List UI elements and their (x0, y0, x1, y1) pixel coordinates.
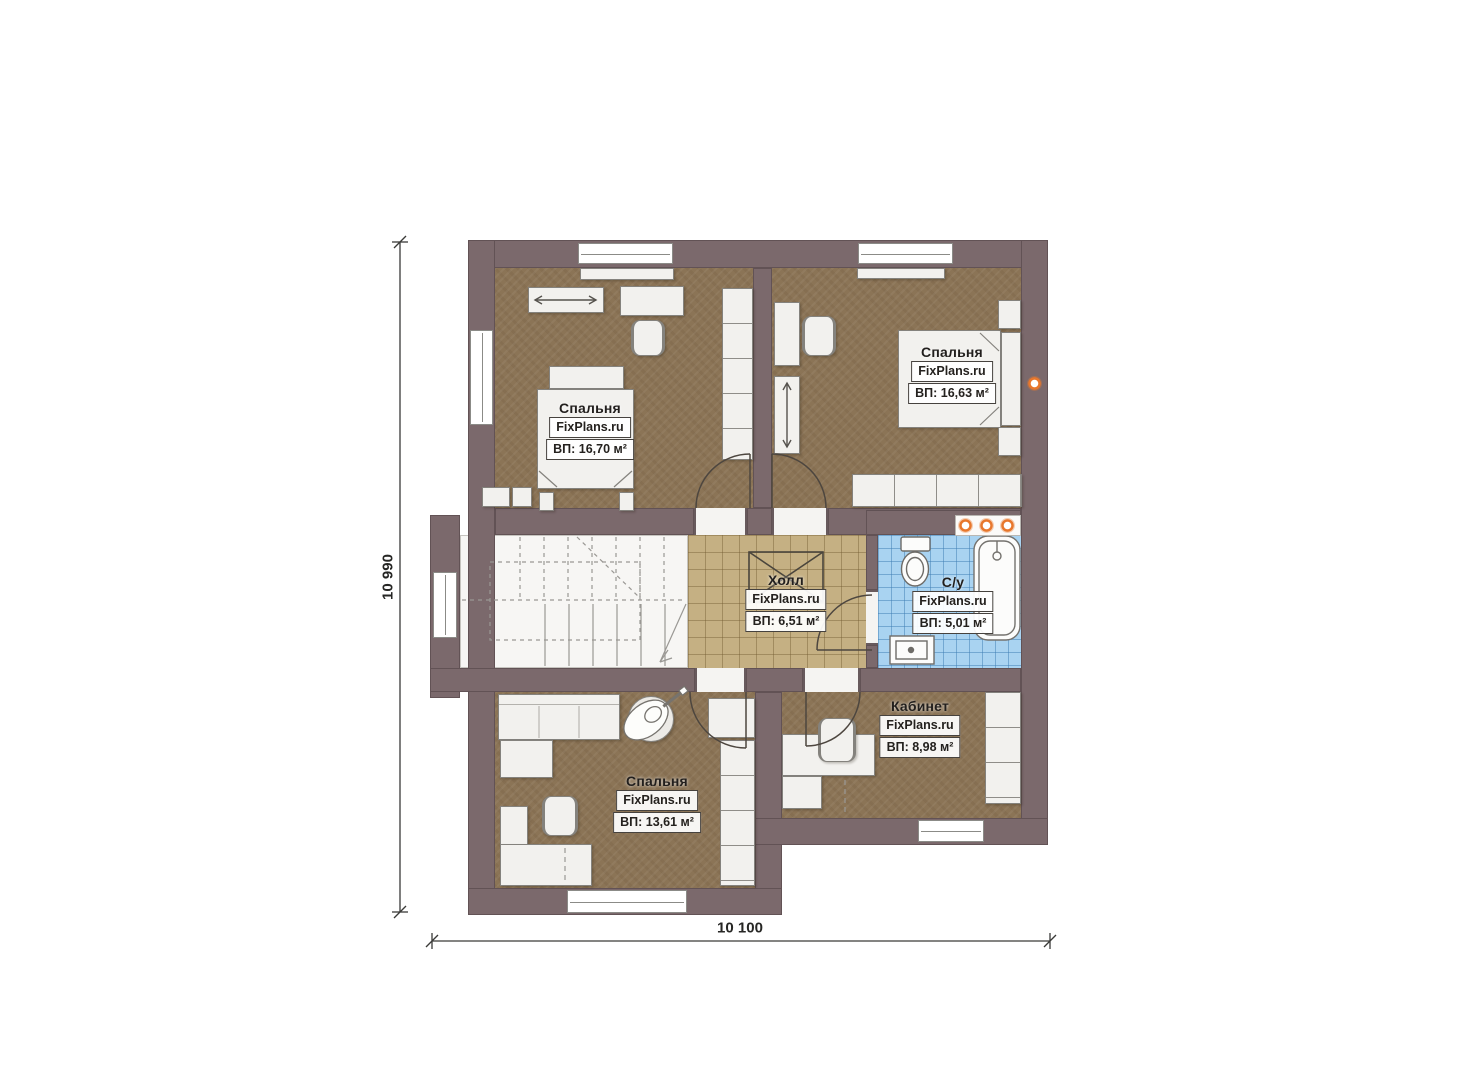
bed-headboard (1001, 332, 1021, 426)
door-opening-bedroom-top-right (772, 508, 828, 535)
room-brand: FixPlans.ru (616, 790, 697, 811)
chair (802, 316, 836, 356)
window (567, 890, 687, 913)
door-opening-office (803, 668, 860, 692)
cabinet (708, 698, 755, 738)
wall-segment (495, 508, 694, 535)
spotlight-icon (979, 518, 994, 533)
sofa (498, 694, 620, 740)
clothes-rail (528, 287, 604, 313)
window-sill-shelf (580, 268, 674, 280)
nightstand (998, 300, 1021, 329)
room-area: ВП: 13,61 м² (613, 812, 701, 833)
chair (631, 320, 665, 356)
wardrobe (720, 740, 755, 886)
room-label-office: Кабинет FixPlans.ru ВП: 8,98 м² (879, 698, 960, 758)
room-name: Кабинет (891, 698, 949, 714)
floor-plan: Спальня FixPlans.ru ВП: 16,70 м² Спальня… (0, 0, 1474, 1080)
room-brand: FixPlans.ru (879, 715, 960, 736)
desk-return (782, 776, 822, 809)
wall-segment (755, 692, 782, 915)
wall-segment (866, 645, 878, 668)
room-label-bedroom-bottom: Спальня FixPlans.ru ВП: 13,61 м² (613, 773, 701, 833)
room-area: ВП: 6,51 м² (746, 611, 827, 632)
room-area: ВП: 16,63 м² (908, 383, 996, 404)
window (578, 243, 673, 264)
door-opening-bedroom-top-left (694, 508, 747, 535)
desk (774, 302, 800, 366)
desk (500, 806, 528, 846)
room-brand: FixPlans.ru (549, 417, 630, 438)
wall-segment (755, 818, 1048, 845)
room-name: Спальня (559, 400, 621, 416)
dimension-width-label: 10 100 (717, 920, 763, 937)
spotlight-icon (1000, 518, 1015, 533)
wall-segment (747, 508, 772, 535)
cabinet (500, 740, 553, 778)
bed-foot-cabinet (539, 492, 554, 511)
wall-segment (468, 240, 1048, 268)
wall-segment (746, 668, 803, 692)
office-chair (818, 718, 856, 762)
wardrobe (722, 288, 753, 460)
room-label-bathroom: С/у FixPlans.ru ВП: 5,01 м² (912, 574, 993, 634)
office-chair (542, 796, 578, 836)
window-sill-shelf (857, 268, 945, 279)
bed-headboard (549, 366, 624, 389)
wall-segment (860, 668, 1021, 692)
room-name: Спальня (921, 344, 983, 360)
bed-foot-cabinet (619, 492, 634, 511)
wall-segment (1021, 240, 1048, 845)
room-area: ВП: 8,98 м² (880, 737, 961, 758)
room-label-bedroom-top-right: Спальня FixPlans.ru ВП: 16,63 м² (908, 344, 996, 404)
room-name: Холл (768, 572, 804, 588)
wardrobe (985, 692, 1021, 804)
dimension-height-label: 10 990 (380, 554, 397, 600)
room-area: ВП: 5,01 м² (913, 613, 994, 634)
room-brand: FixPlans.ru (912, 591, 993, 612)
round-rug (628, 696, 674, 742)
room-label-bedroom-top-left: Спальня FixPlans.ru ВП: 16,70 м² (546, 400, 634, 460)
nightstand (998, 427, 1021, 456)
window (918, 820, 984, 842)
room-brand: FixPlans.ru (745, 589, 826, 610)
room-area: ВП: 16,70 м² (546, 439, 634, 460)
window (470, 330, 493, 425)
bedside-cabinet (482, 487, 510, 507)
bedside-cabinet (512, 487, 532, 507)
room-name: Спальня (626, 773, 688, 789)
window (433, 572, 457, 638)
room-brand: FixPlans.ru (911, 361, 992, 382)
window (858, 243, 953, 264)
wall-lamp-icon (1027, 376, 1042, 391)
wall-segment (430, 668, 695, 692)
door-opening-bathroom (866, 590, 878, 645)
wardrobe-row (852, 474, 1022, 507)
desk (620, 286, 684, 316)
room-label-hall: Холл FixPlans.ru ВП: 6,51 м² (745, 572, 826, 632)
wall-segment (866, 535, 878, 590)
desk (500, 844, 592, 886)
spotlight-icon (958, 518, 973, 533)
room-name: С/у (942, 574, 964, 590)
wall-segment (753, 268, 772, 508)
door-opening-bedroom-bottom (695, 668, 746, 692)
clothes-rail (774, 376, 800, 454)
